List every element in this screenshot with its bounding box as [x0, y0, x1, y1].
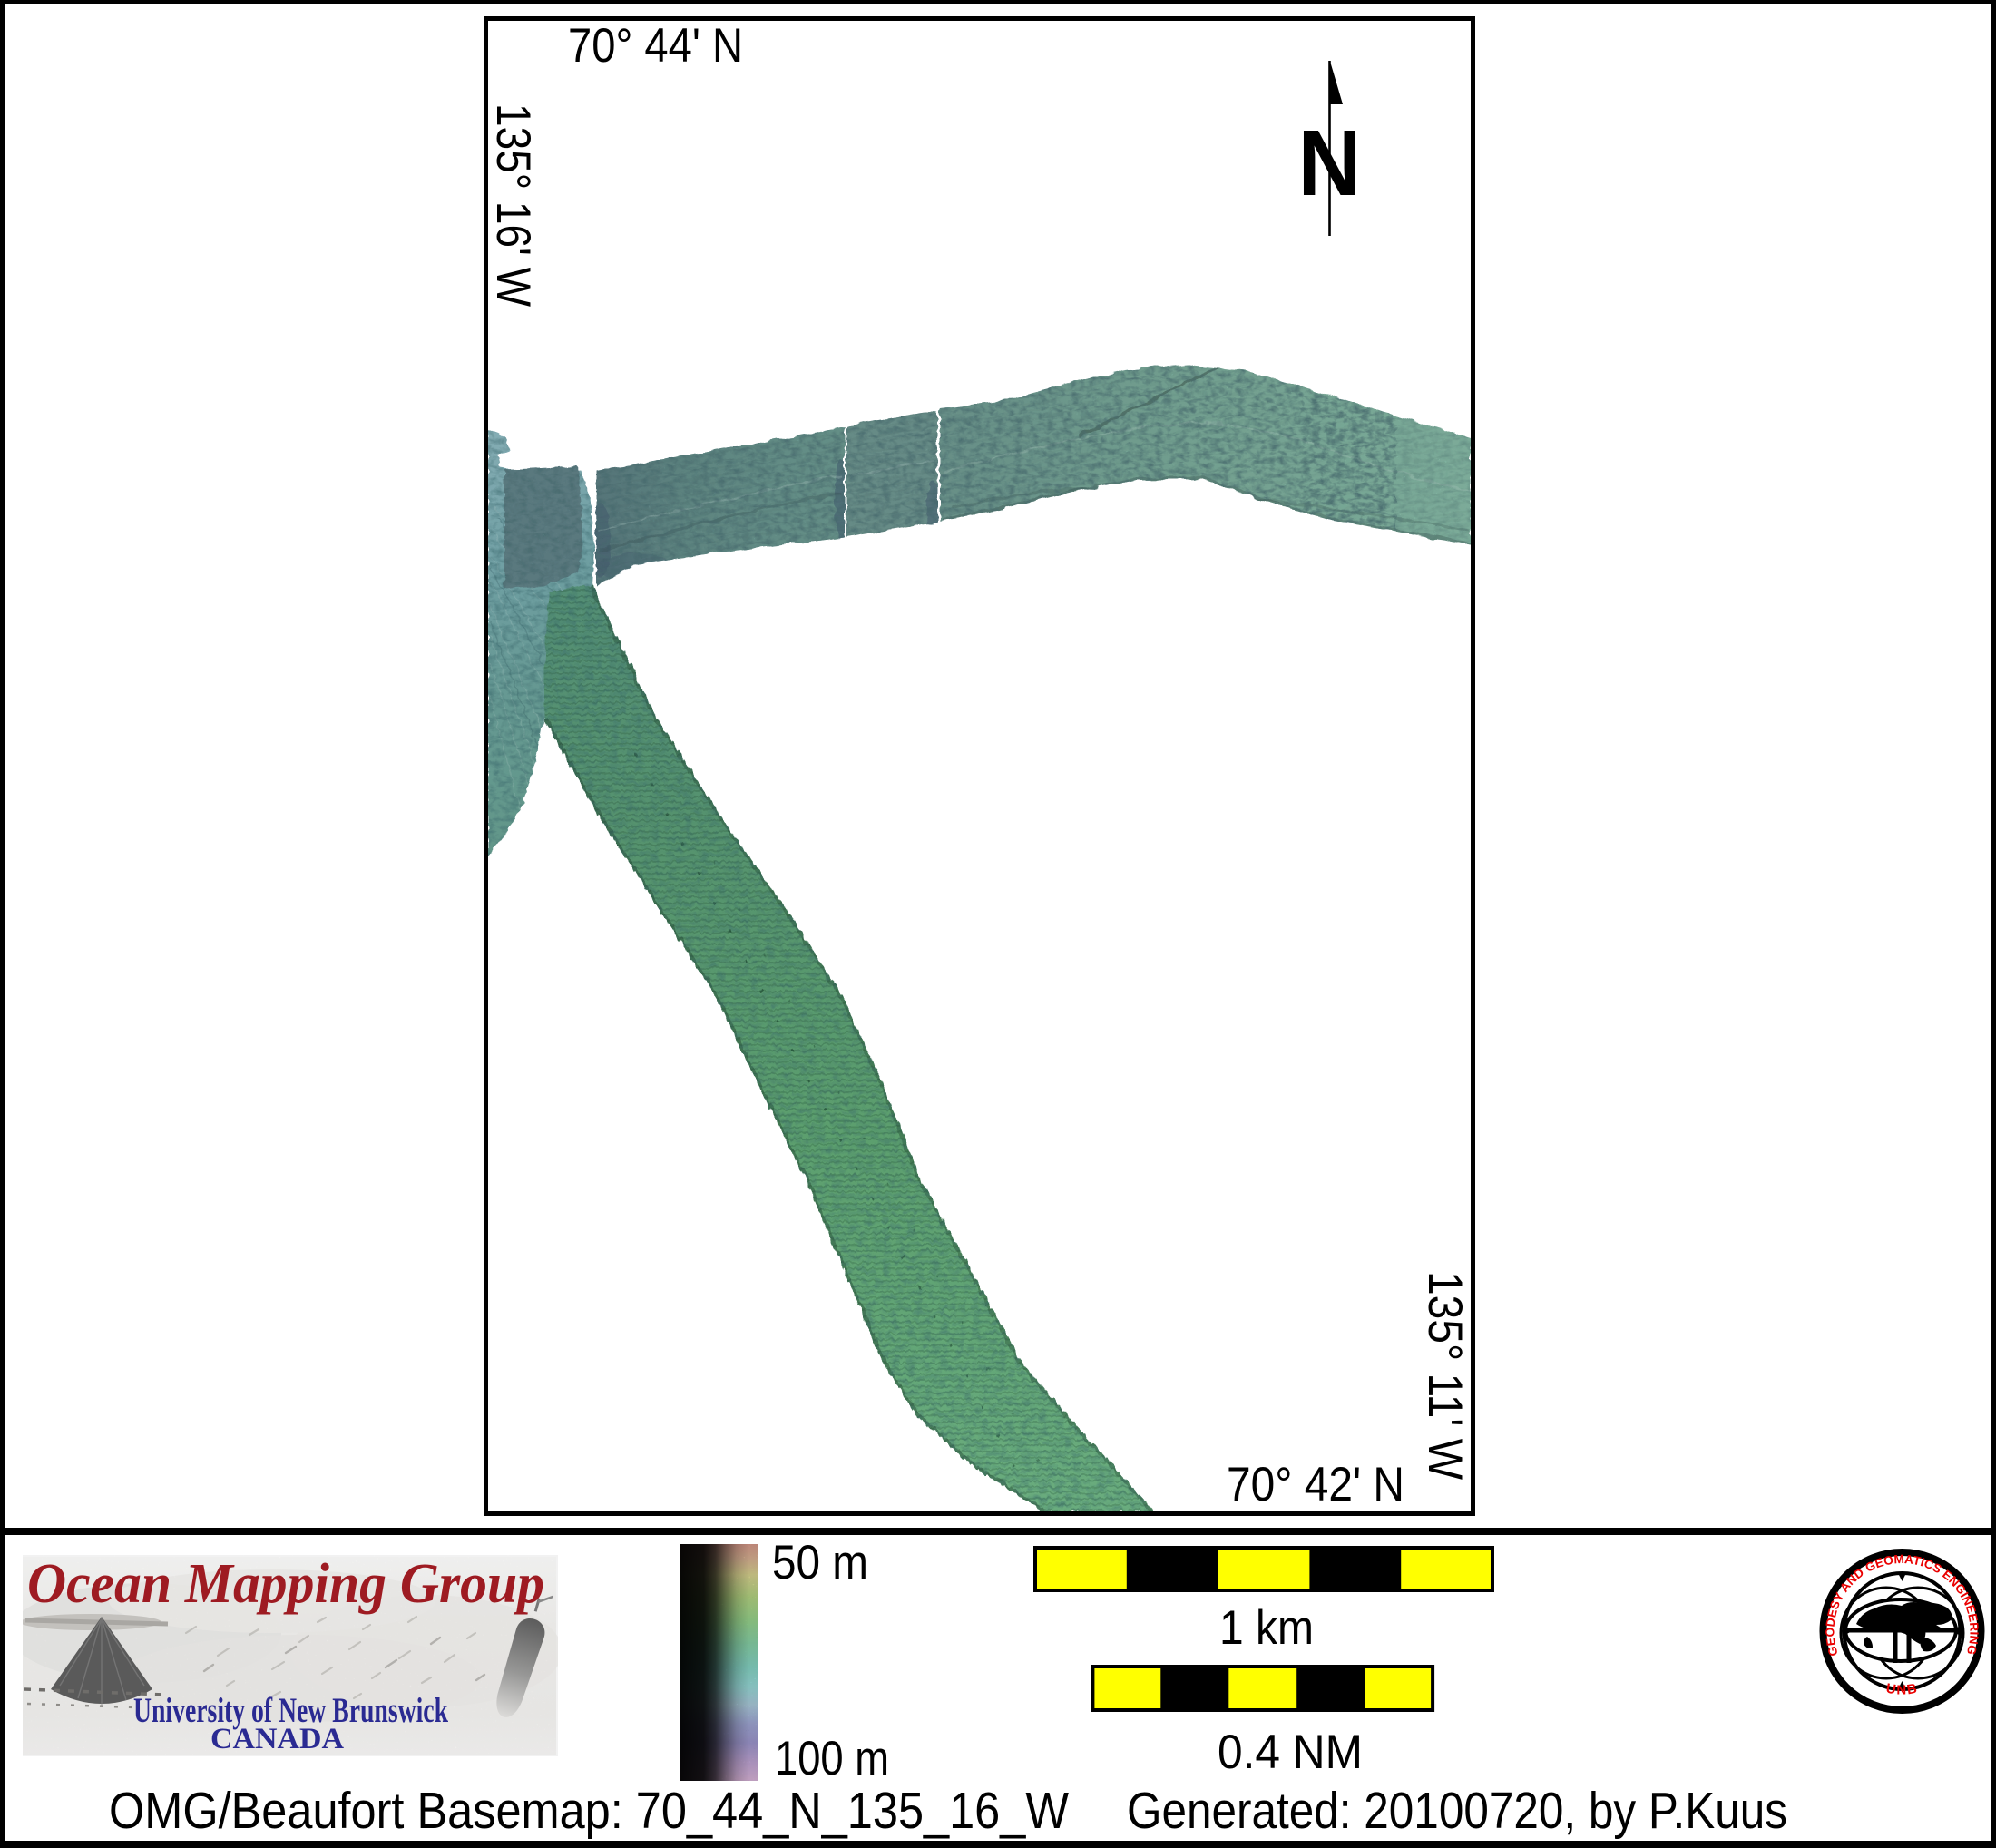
- svg-text:1 km: 1 km: [1219, 1601, 1314, 1655]
- svg-text:70° 42' N: 70° 42' N: [1227, 1458, 1404, 1511]
- svg-text:100 m: 100 m: [775, 1732, 889, 1785]
- svg-text:OMG/Beaufort Basemap: 70_44_N_: OMG/Beaufort Basemap: 70_44_N_135_16_W: [109, 1782, 1069, 1840]
- svg-text:70° 44' N: 70° 44' N: [568, 19, 743, 73]
- svg-text:CANADA: CANADA: [210, 1723, 344, 1755]
- svg-text:Ocean Mapping Group: Ocean Mapping Group: [27, 1553, 544, 1615]
- svg-text:N: N: [1298, 111, 1362, 215]
- svg-text:UNB: UNB: [1884, 1681, 1919, 1698]
- svg-text:Generated: 20100720, by P.Kuus: Generated: 20100720, by P.Kuus: [1127, 1782, 1787, 1840]
- svg-text:135° 11' W: 135° 11' W: [1418, 1271, 1472, 1480]
- svg-text:50 m: 50 m: [772, 1536, 868, 1589]
- svg-text:0.4 NM: 0.4 NM: [1218, 1726, 1363, 1779]
- svg-text:135° 16' W: 135° 16' W: [486, 103, 540, 307]
